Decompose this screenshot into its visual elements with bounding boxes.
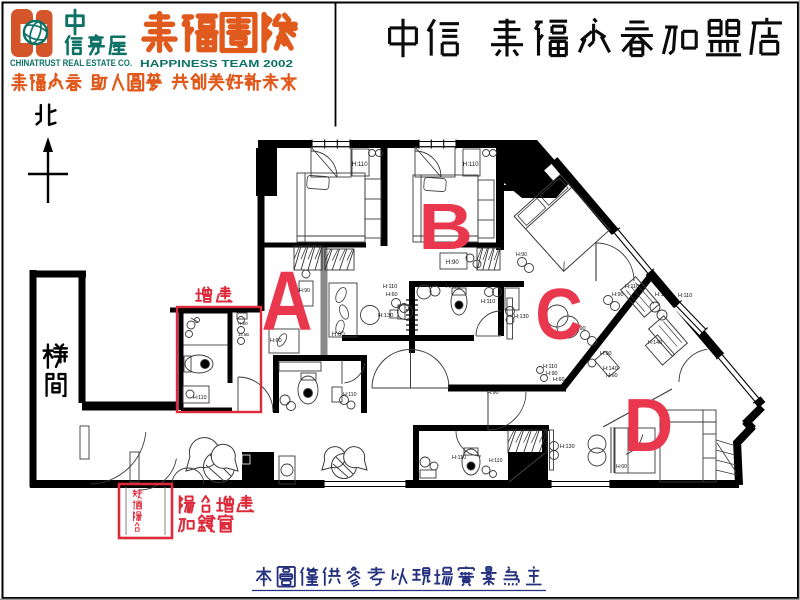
svg-text:H:110: H:110 <box>463 162 479 168</box>
svg-text:HAPPINESS TEAM 2002: HAPPINESS TEAM 2002 <box>140 58 293 70</box>
svg-text:H:60: H:60 <box>386 292 398 298</box>
svg-text:D: D <box>624 384 673 468</box>
svg-text:H:140: H:140 <box>648 340 662 346</box>
svg-text:H:110: H:110 <box>625 284 639 290</box>
svg-text:H:110: H:110 <box>193 395 207 401</box>
svg-text:H:90: H:90 <box>612 292 624 298</box>
svg-text:H:110: H:110 <box>383 284 397 290</box>
svg-text:H:60: H:60 <box>553 377 565 383</box>
svg-text:H:110: H:110 <box>678 293 692 299</box>
svg-text:H:60: H:60 <box>332 332 345 338</box>
svg-text:H:110: H:110 <box>543 364 557 370</box>
svg-text:H:130: H:130 <box>514 314 529 320</box>
svg-text:H:110: H:110 <box>352 162 368 168</box>
svg-text:B: B <box>418 190 472 263</box>
svg-text:H:130: H:130 <box>560 444 575 450</box>
svg-text:CHINATRUST REAL ESTATE CO.: CHINATRUST REAL ESTATE CO. <box>10 58 132 68</box>
svg-text:A: A <box>262 255 313 348</box>
svg-text:H:110: H:110 <box>655 292 669 298</box>
svg-text:C: C <box>535 274 582 355</box>
svg-text:H:90: H:90 <box>487 390 499 396</box>
svg-text:H:110: H:110 <box>481 299 495 305</box>
svg-text:H:110: H:110 <box>452 455 466 461</box>
svg-text:H:60: H:60 <box>238 321 248 326</box>
svg-text:H:90: H:90 <box>600 351 612 357</box>
svg-text:H:110: H:110 <box>446 284 460 290</box>
svg-text:H:110: H:110 <box>489 458 503 464</box>
svg-text:14.5B: 14.5B <box>238 332 249 337</box>
svg-text:H:110: H:110 <box>343 392 357 398</box>
svg-text:H:90: H:90 <box>516 252 527 258</box>
